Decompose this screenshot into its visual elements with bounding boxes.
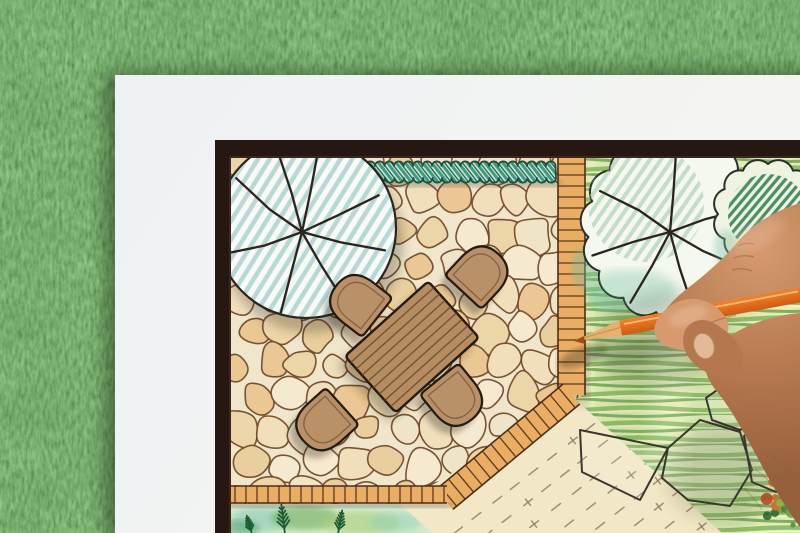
garden-plan-photo — [0, 0, 800, 533]
photo-canvas — [0, 0, 800, 533]
planting-bed — [220, 504, 432, 533]
hedge-row — [356, 161, 560, 187]
